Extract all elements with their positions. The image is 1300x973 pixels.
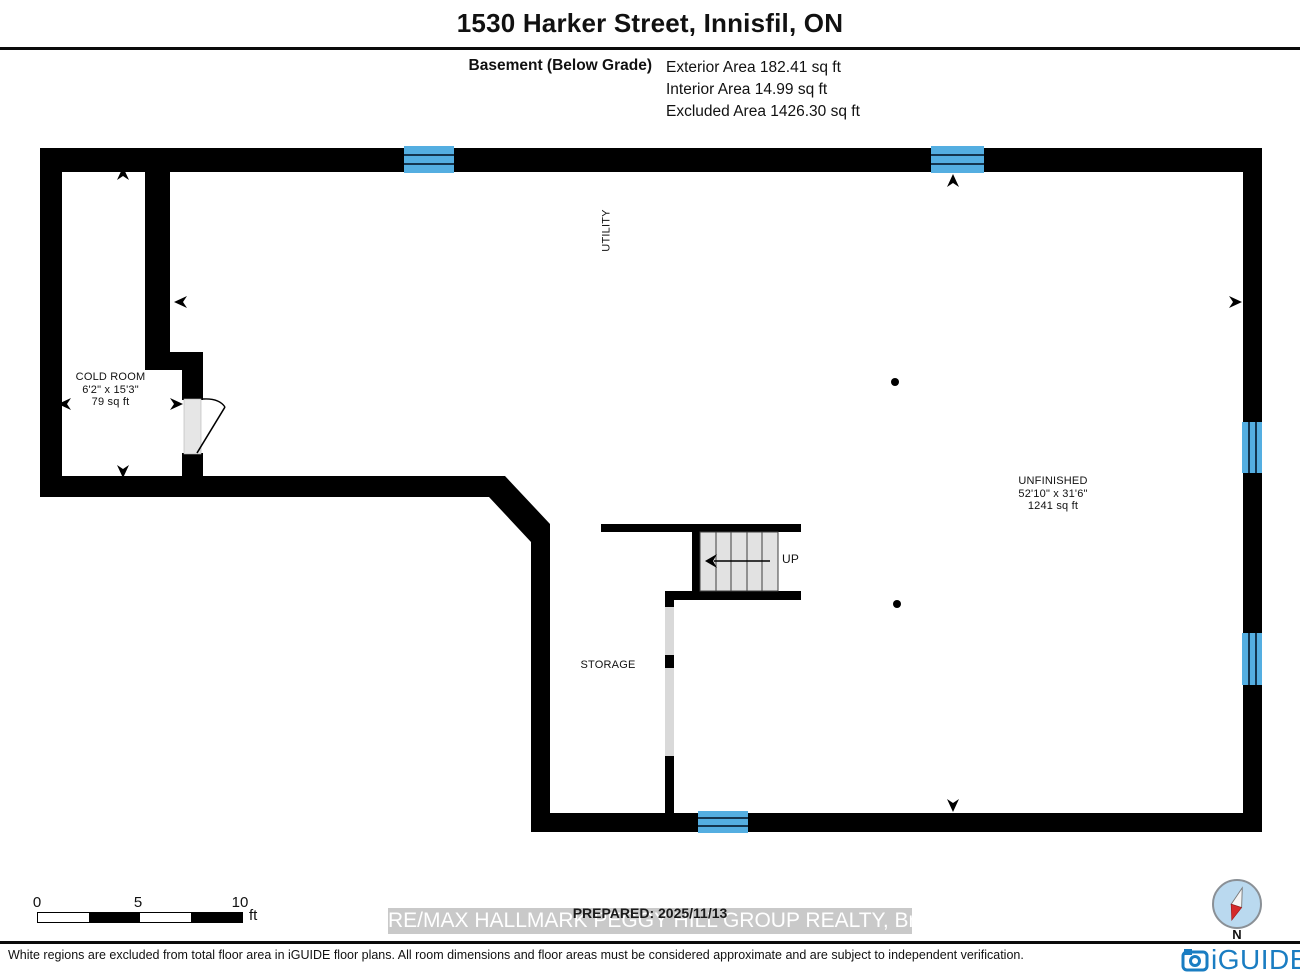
window-top-left-icon <box>404 146 454 173</box>
window-bottom-icon <box>698 811 748 833</box>
iguide-logo: iGUIDE <box>1181 944 1300 973</box>
arrow-up-icon <box>947 174 959 187</box>
room-dimensions: 6'2" x 15'3" <box>38 384 183 397</box>
iguide-logo-text: iGUIDE <box>1211 944 1300 973</box>
prepared-date: PREPARED: 2025/11/13 <box>450 905 850 921</box>
floor-plan-page: 1530 Harker Street, Innisfil, ON Basemen… <box>0 0 1300 973</box>
storage-label: STORAGE <box>548 659 668 672</box>
room-area: 79 sq ft <box>38 396 183 409</box>
scale-tick-5: 5 <box>131 894 145 911</box>
footer-disclaimer: White regions are excluded from total fl… <box>8 948 1108 962</box>
stairs-up-label: UP <box>782 553 818 566</box>
iguide-camera-icon <box>1181 948 1209 972</box>
footer-divider <box>0 941 1300 944</box>
room-name: COLD ROOM <box>38 371 183 384</box>
compass-north-label: N <box>1217 927 1257 942</box>
window-top-right-icon <box>931 146 984 173</box>
room-name: UNFINISHED <box>983 475 1123 488</box>
scale-bar <box>37 912 243 923</box>
cold-room-label: COLD ROOM 6'2" x 15'3" 79 sq ft <box>38 371 183 409</box>
support-columns <box>891 378 901 608</box>
arrow-left-icon <box>174 296 187 308</box>
window-right-lower-icon <box>1242 633 1262 685</box>
compass-icon <box>1205 875 1269 935</box>
room-dimensions: 52'10" x 31'6" <box>983 488 1123 501</box>
door <box>184 399 225 454</box>
window-right-upper-icon <box>1242 422 1262 473</box>
utility-label: UTILITY <box>601 201 614 261</box>
staircase <box>700 532 778 591</box>
scale-tick-0: 0 <box>30 894 44 911</box>
unfinished-label: UNFINISHED 52'10" x 31'6" 1241 sq ft <box>983 475 1123 513</box>
scale-unit: ft <box>249 907 257 924</box>
arrow-down-icon <box>947 799 959 812</box>
partial-wall <box>665 607 674 756</box>
room-area: 1241 sq ft <box>983 500 1123 513</box>
arrow-right-icon <box>1229 296 1242 308</box>
